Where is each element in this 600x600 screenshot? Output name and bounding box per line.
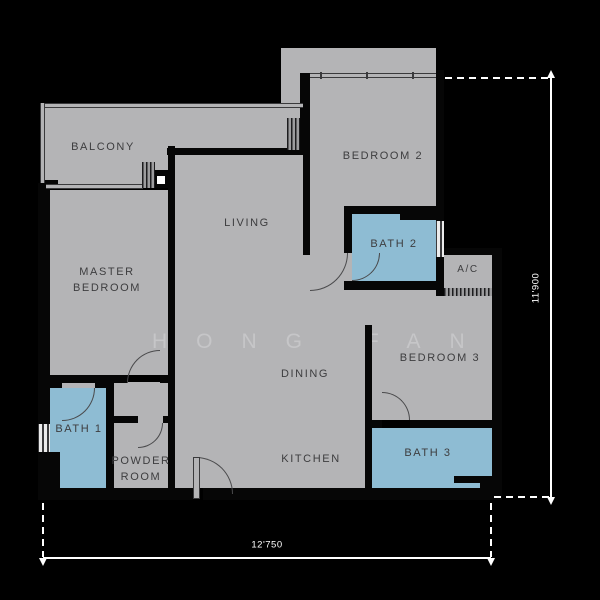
wall-bath2-left xyxy=(344,212,352,253)
label-ac: A/C xyxy=(457,262,478,278)
label-kitchen: KITCHEN xyxy=(281,451,340,467)
dimension-line-right xyxy=(550,77,552,498)
window-balcony-left xyxy=(40,103,45,183)
dimension-ext-top-right xyxy=(445,77,551,79)
bath3-step-side xyxy=(480,481,492,490)
label-bedroom2: BEDROOM 2 xyxy=(343,148,423,164)
hatch-living-window xyxy=(287,118,300,150)
window-bedroom2-top xyxy=(310,73,436,78)
wall-kitchen-bedroom3 xyxy=(365,325,372,492)
wall-living-corridor xyxy=(303,148,310,255)
dimension-ext-bottom-right-corner xyxy=(494,496,552,498)
dimension-arrow-right-end xyxy=(487,558,495,566)
balcony-fixture-inner xyxy=(157,176,165,184)
window-balcony-top xyxy=(40,103,303,108)
label-dining: DINING xyxy=(281,366,329,382)
window-bath1-left xyxy=(38,424,50,452)
wall-bedroom2-right xyxy=(436,70,444,296)
label-master-line1: MASTER xyxy=(73,264,141,280)
hatch-ac-vent xyxy=(444,288,492,296)
bath1-fixture-block xyxy=(46,452,60,488)
label-powder-room: POWDER ROOM xyxy=(111,453,170,485)
label-master-bedroom: MASTER BEDROOM xyxy=(73,264,141,296)
wall-master-right xyxy=(168,146,175,492)
wall-powder-top-right xyxy=(163,416,168,423)
floorplan-canvas: HONG FAN BALCONY MASTER xyxy=(0,0,600,600)
window-bath2-right xyxy=(436,221,444,257)
wall-bath1-top-right xyxy=(95,382,106,388)
label-powder-line1: POWDER xyxy=(111,453,170,469)
wall-right-exterior xyxy=(492,248,502,500)
label-balcony: BALCONY xyxy=(71,139,135,155)
bath2-counter xyxy=(400,212,436,220)
balcony-upper-ledge xyxy=(281,48,436,75)
wall-bottom-right xyxy=(203,488,502,500)
label-bath3: BATH 3 xyxy=(404,445,451,461)
wall-bedroom3-bath3-left xyxy=(372,420,382,428)
label-bath1: BATH 1 xyxy=(55,421,102,437)
wall-bedroom3-bath3-right xyxy=(410,420,492,428)
dimension-arrow-top xyxy=(547,70,555,78)
label-master-line2: BEDROOM xyxy=(73,280,141,296)
label-powder-line2: ROOM xyxy=(111,469,170,485)
wall-bath1-top-left xyxy=(48,382,62,388)
dimension-ext-right xyxy=(490,503,492,557)
dimension-value-bottom: 12'750 xyxy=(251,540,282,551)
window-mullion xyxy=(412,72,414,79)
dimension-arrow-left-end xyxy=(39,558,47,566)
bedroom3-entry-gap xyxy=(365,290,372,325)
wall-master-bottom-right xyxy=(160,375,175,383)
dimension-ext-left xyxy=(42,503,44,557)
wall-powder-top-left xyxy=(114,416,138,423)
door-entrance-leaf xyxy=(193,457,200,499)
window-master-balcony xyxy=(46,184,143,189)
dimension-arrow-bottom xyxy=(547,497,555,505)
label-living: LIVING xyxy=(224,215,270,231)
wall-ac-top xyxy=(443,248,502,255)
label-bedroom3: BEDROOM 3 xyxy=(400,350,480,366)
dimension-line-bottom xyxy=(43,557,491,559)
wall-bath2-bottom xyxy=(344,281,444,290)
dimension-value-right: 11'900 xyxy=(531,273,542,304)
window-mullion xyxy=(320,72,322,79)
wall-bedroom2-left-upper xyxy=(300,73,310,150)
window-mullion xyxy=(366,72,368,79)
label-bath2: BATH 2 xyxy=(370,236,417,252)
hatch-balcony-window xyxy=(142,162,155,188)
